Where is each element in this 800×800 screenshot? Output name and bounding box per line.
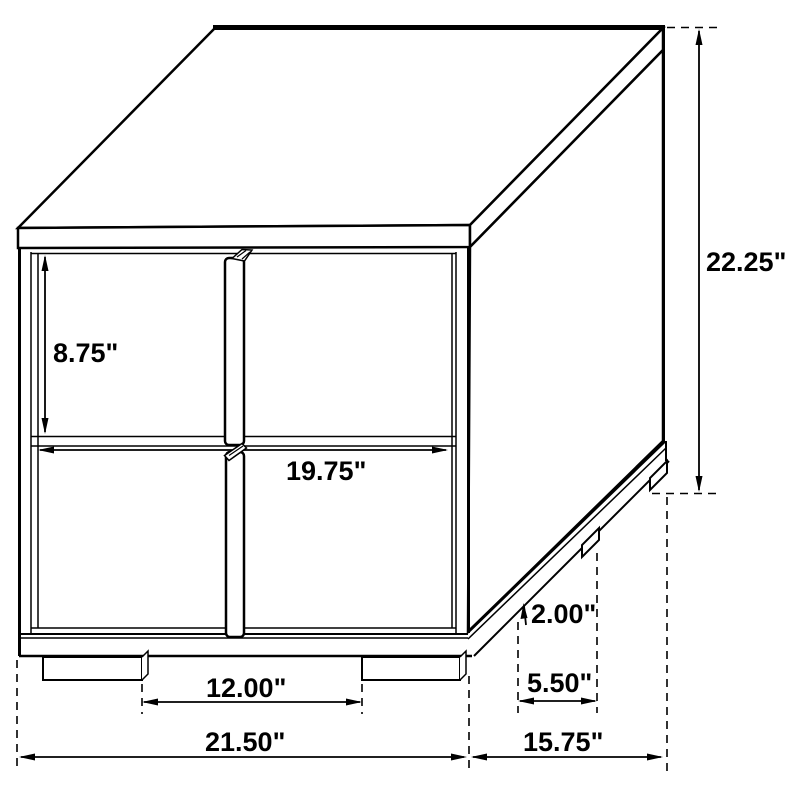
arrowhead-left [518,698,534,705]
dimension-front-leg-spacing: 12.00" [142,673,362,714]
arrowhead-left [142,699,158,706]
arrowhead-down [42,418,49,434]
arrowhead-right [581,698,597,705]
diagram-canvas: 8.75" 19.75" 22.25" 2.00" 5. [0,0,800,800]
dimension-label: 22.25" [706,247,786,277]
dimension-label: 8.75" [53,338,118,368]
handle-lower-bar [226,452,244,637]
dimension-label: 21.50" [205,727,285,757]
handle-top-bevel [232,250,252,262]
arrowhead-right [346,699,362,706]
side-back-leg [650,461,667,490]
top-front-edge [18,225,470,248]
dimension-side-leg-spacing: 5.50" [518,553,597,713]
handle-upper-bar [225,258,244,445]
arrowhead-left [19,754,35,761]
side-middle-leg [582,528,599,557]
arrowhead-up [42,255,49,271]
drawer-handle [225,250,253,638]
arrowhead-right [647,754,663,761]
arrowhead-left [38,447,54,454]
dimension-base-height: 2.00" [521,599,597,629]
arrowhead-right [432,447,448,454]
arrowhead-up [521,603,528,619]
arrowhead-up [696,29,703,45]
dimension-overall-height: 22.25" [652,28,786,494]
dimension-label: 15.75" [523,727,603,757]
dimension-label: 19.75" [286,456,366,486]
nightstand-dimension-diagram: 8.75" 19.75" 22.25" 2.00" 5. [0,0,800,800]
dimension-label: 2.00" [531,599,596,629]
dimension-label: 5.50" [527,668,592,698]
arrowhead-right [451,754,467,761]
dimension-label: 12.00" [206,673,286,703]
arrowhead-down [696,476,703,492]
dimension-upper-drawer-height: 8.75" [42,255,119,434]
arrowhead-left [471,754,487,761]
